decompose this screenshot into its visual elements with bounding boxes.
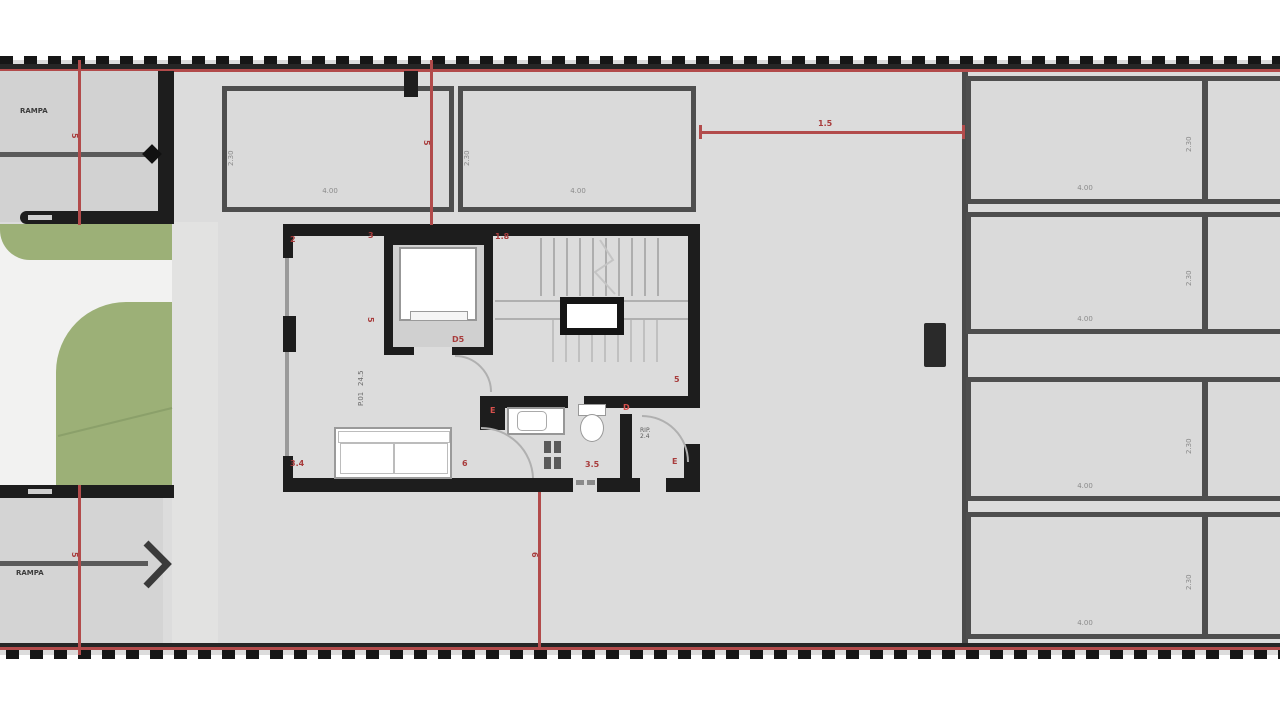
dim-tick bbox=[699, 125, 702, 139]
dim-line-left-top bbox=[78, 60, 81, 225]
living-door-arc bbox=[455, 356, 491, 392]
dim-label: 2 bbox=[290, 236, 296, 244]
room-label: P.01 24.5 bbox=[358, 360, 365, 406]
overlay-lines bbox=[0, 0, 1280, 720]
dim-line-center-bottom bbox=[538, 492, 541, 650]
dim-label: E bbox=[672, 458, 677, 466]
room-name: P.01 bbox=[357, 392, 365, 406]
dim-line-top-span bbox=[700, 131, 965, 134]
dim-label: D5 bbox=[452, 336, 464, 344]
floor-plan-canvas: RAMPA RAMPA 4.00 4.00 2.30 2.30 bbox=[0, 0, 1280, 720]
dim-label: 3.4 bbox=[290, 460, 304, 468]
dim-label: D bbox=[623, 404, 630, 412]
dim-label: 3.5 bbox=[585, 461, 599, 469]
dim-label: 5 bbox=[422, 140, 430, 146]
dim-label: 3 bbox=[368, 232, 374, 240]
ramp-arrow-icon bbox=[146, 543, 167, 586]
dim-label: 1.8 bbox=[495, 233, 509, 241]
dim-label: 1.5 bbox=[818, 120, 832, 128]
stair-break-line bbox=[595, 240, 615, 294]
room-area: 24.5 bbox=[357, 371, 365, 387]
dim-label: 5 bbox=[674, 376, 680, 384]
dim-label: 5 bbox=[70, 552, 78, 558]
dim-label: 6 bbox=[530, 552, 538, 558]
storage-area: 2.4 bbox=[640, 434, 651, 440]
dim-line-left-bottom bbox=[78, 485, 81, 655]
dim-label: 6 bbox=[462, 460, 468, 468]
storage-label: RIP. 2.4 bbox=[640, 428, 651, 440]
bath-door-arc bbox=[481, 428, 533, 478]
dim-label: 5 bbox=[366, 317, 374, 323]
dim-label: 5 bbox=[70, 133, 78, 139]
dim-label: E bbox=[490, 407, 495, 415]
garden-seam-line bbox=[58, 408, 172, 436]
dim-tick bbox=[962, 125, 965, 139]
